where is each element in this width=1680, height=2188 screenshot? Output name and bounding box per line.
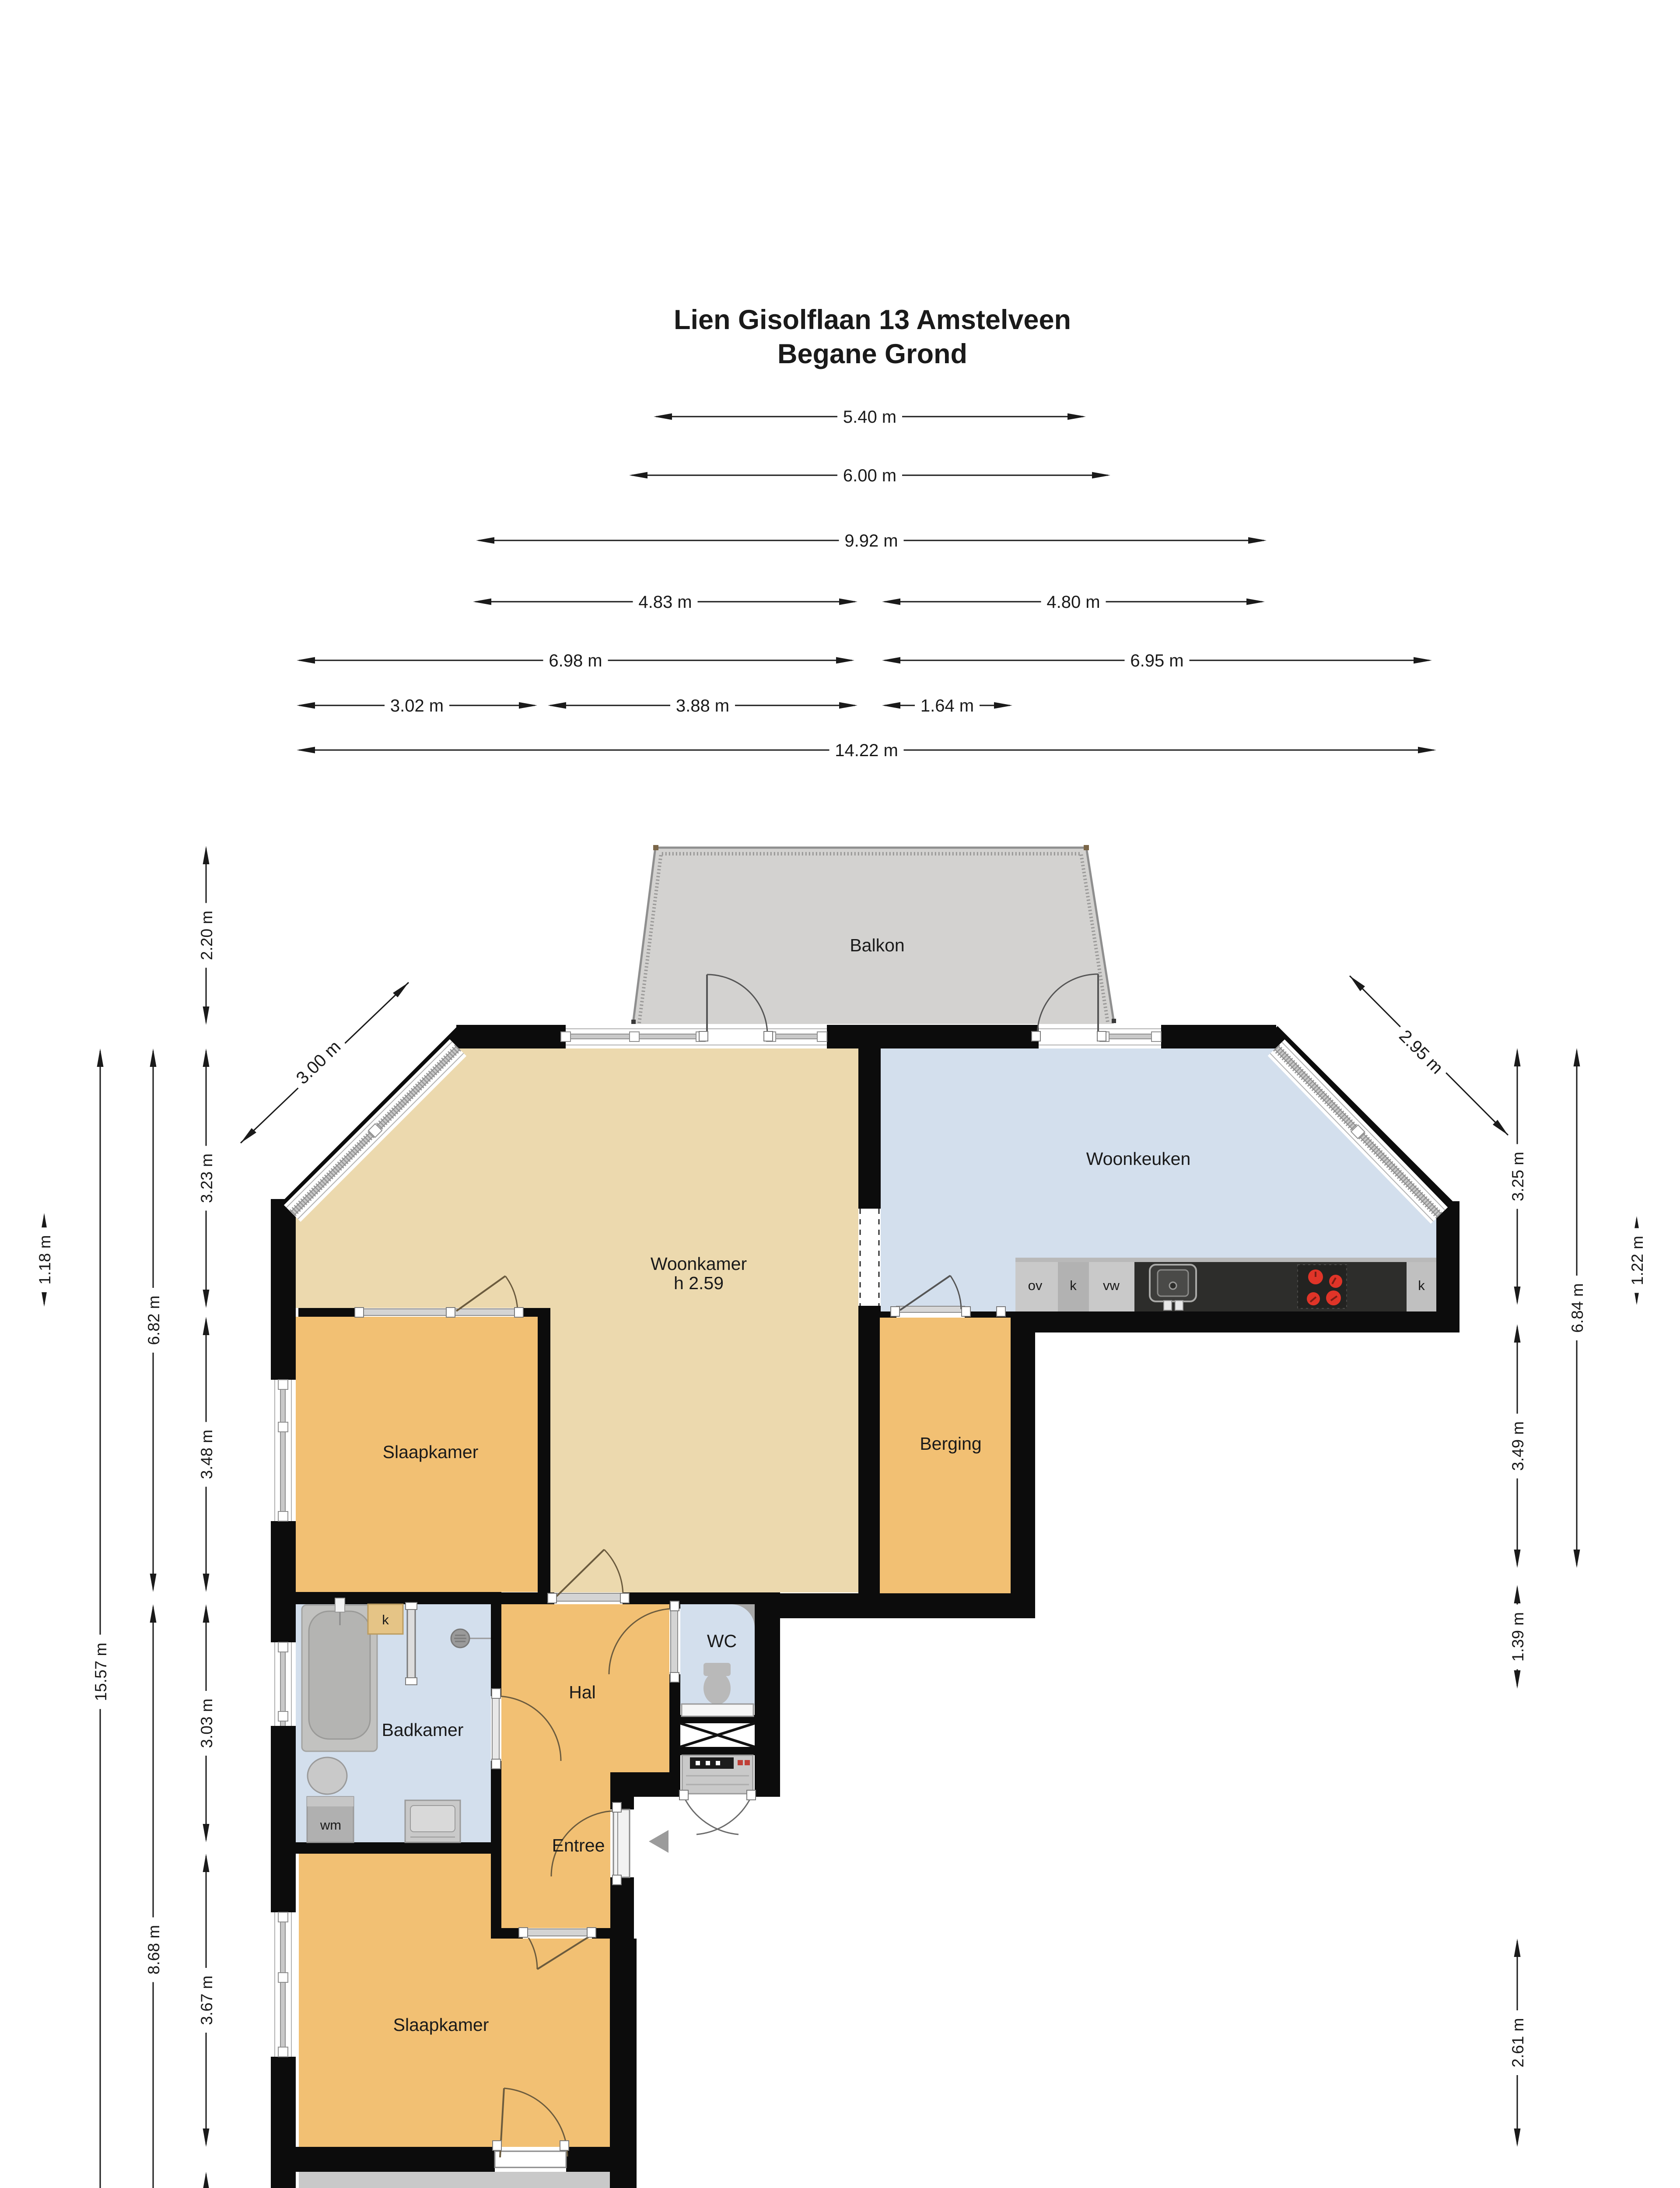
svg-text:3.67 m: 3.67 m: [198, 1975, 216, 2025]
svg-text:Balkon: Balkon: [850, 935, 904, 955]
svg-text:6.84 m: 6.84 m: [1568, 1283, 1586, 1332]
svg-text:k: k: [1418, 1278, 1425, 1293]
svg-text:3.88 m: 3.88 m: [676, 696, 729, 715]
svg-text:6.00 m: 6.00 m: [843, 466, 896, 485]
svg-text:15.57 m: 15.57 m: [92, 1643, 110, 1701]
svg-text:Begane Grond: Begane Grond: [777, 339, 967, 369]
svg-text:Badkamer: Badkamer: [382, 1720, 464, 1740]
svg-text:Woonkamer: Woonkamer: [651, 1254, 747, 1274]
svg-text:3.25 m: 3.25 m: [1509, 1152, 1527, 1201]
svg-text:3.49 m: 3.49 m: [1509, 1421, 1527, 1471]
svg-text:1.18 m: 1.18 m: [36, 1235, 54, 1284]
svg-text:14.22 m: 14.22 m: [835, 741, 898, 760]
svg-text:6.82 m: 6.82 m: [145, 1295, 163, 1345]
svg-text:ov: ov: [1028, 1278, 1043, 1293]
svg-text:Slaapkamer: Slaapkamer: [393, 2015, 489, 2035]
svg-text:Berging: Berging: [920, 1434, 981, 1454]
svg-text:k: k: [1070, 1278, 1077, 1293]
svg-text:5.40 m: 5.40 m: [843, 407, 896, 427]
svg-text:wm: wm: [320, 1817, 341, 1833]
svg-text:Entree: Entree: [552, 1835, 605, 1855]
svg-text:vw: vw: [1103, 1278, 1120, 1293]
svg-text:1.39 m: 1.39 m: [1509, 1612, 1527, 1662]
svg-text:8.68 m: 8.68 m: [145, 1925, 163, 1974]
svg-text:6.98 m: 6.98 m: [549, 651, 602, 670]
svg-text:3.03 m: 3.03 m: [198, 1698, 216, 1748]
svg-text:3.02 m: 3.02 m: [390, 696, 444, 715]
svg-text:4.83 m: 4.83 m: [638, 593, 692, 612]
svg-text:2.20 m: 2.20 m: [198, 911, 216, 960]
svg-text:6.95 m: 6.95 m: [1130, 651, 1183, 670]
svg-text:2.61 m: 2.61 m: [1509, 2018, 1527, 2067]
svg-text:Lien Gisolflaan 13 Amstelveen: Lien Gisolflaan 13 Amstelveen: [674, 305, 1071, 335]
svg-text:1.22 m: 1.22 m: [1628, 1236, 1646, 1285]
svg-text:WC: WC: [707, 1631, 737, 1651]
svg-text:4.80 m: 4.80 m: [1046, 593, 1100, 612]
svg-text:9.92 m: 9.92 m: [844, 531, 898, 551]
svg-text:1.64 m: 1.64 m: [920, 696, 974, 715]
svg-text:3.23 m: 3.23 m: [198, 1154, 216, 1203]
svg-text:Woonkeuken: Woonkeuken: [1086, 1149, 1191, 1169]
svg-text:h 2.59: h 2.59: [674, 1273, 724, 1293]
svg-text:Slaapkamer: Slaapkamer: [383, 1442, 479, 1462]
svg-text:k: k: [382, 1612, 389, 1627]
svg-text:3.48 m: 3.48 m: [198, 1430, 216, 1479]
svg-text:Hal: Hal: [569, 1682, 596, 1702]
